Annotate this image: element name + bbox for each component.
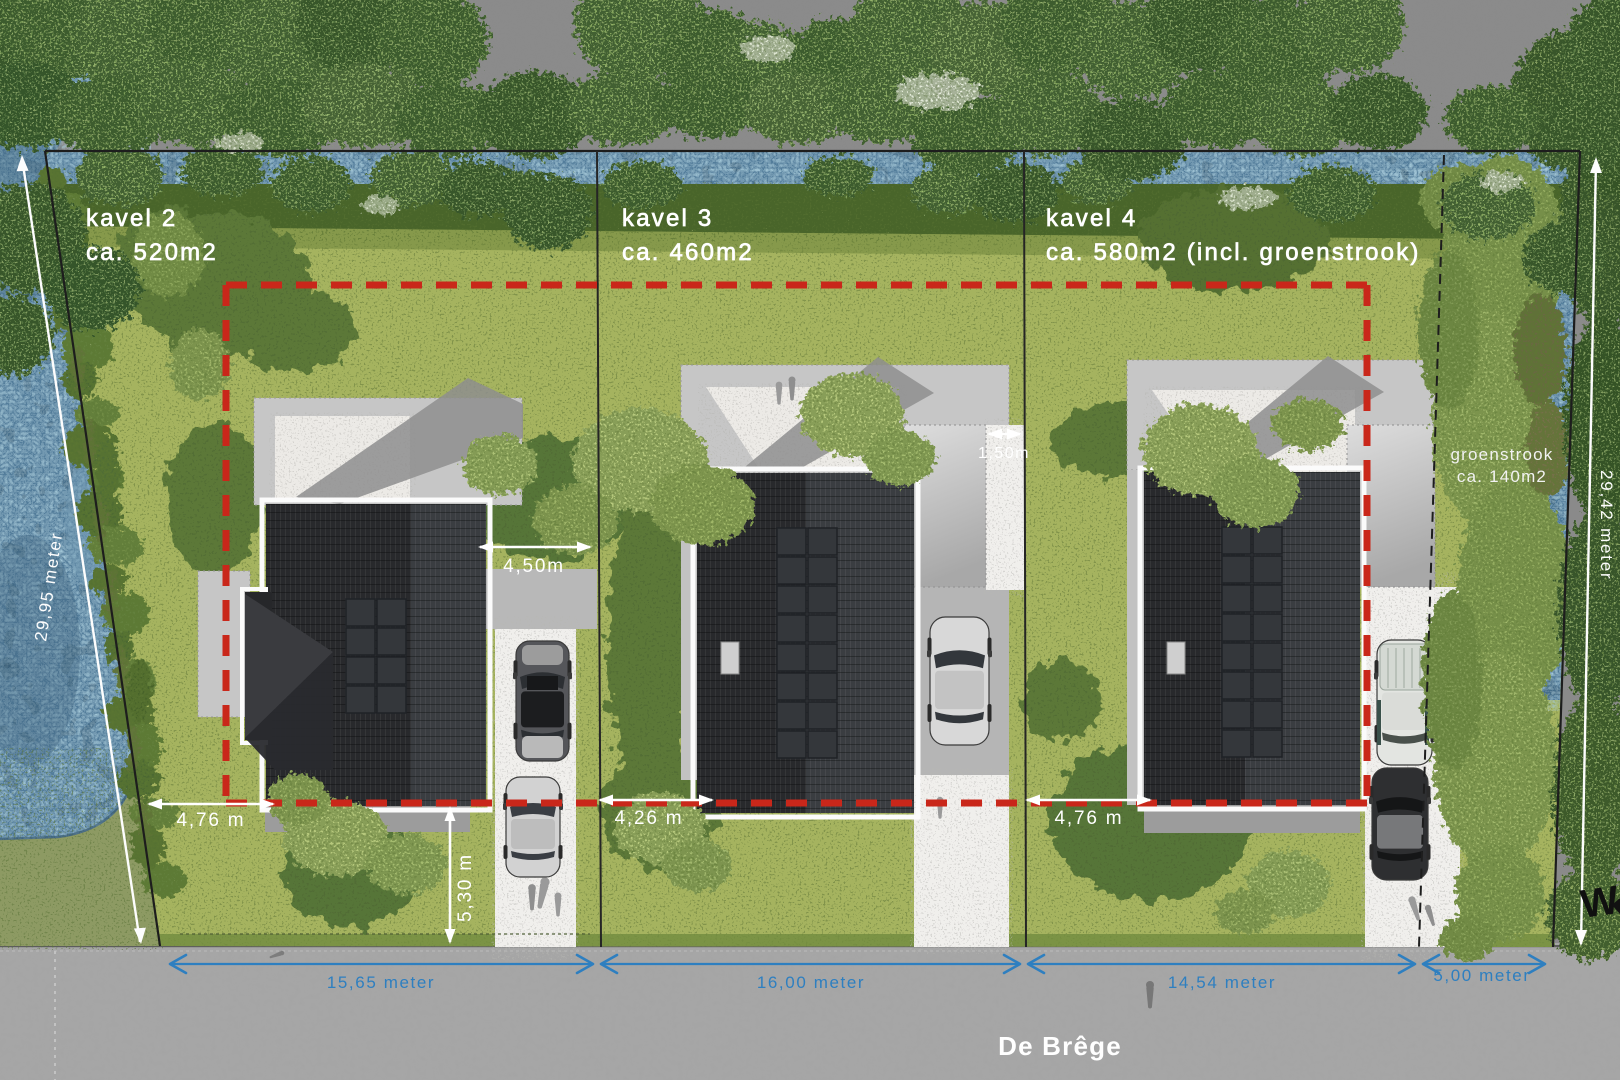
- svg-text:29,42 meter: 29,42 meter: [1597, 470, 1616, 581]
- svg-text:kavel 4: kavel 4: [1046, 205, 1137, 232]
- svg-text:4,26 m: 4,26 m: [615, 808, 684, 829]
- svg-text:14,54 meter: 14,54 meter: [1168, 973, 1276, 992]
- svg-text:De Brêge: De Brêge: [998, 1031, 1122, 1061]
- svg-text:groenstrook: groenstrook: [1451, 445, 1554, 464]
- svg-text:4,76 m: 4,76 m: [177, 810, 246, 831]
- svg-text:ca. 520m2: ca. 520m2: [86, 239, 218, 266]
- svg-text:kavel 3: kavel 3: [622, 205, 713, 232]
- svg-text:4,76 m: 4,76 m: [1055, 808, 1124, 829]
- svg-text:15,65 meter: 15,65 meter: [327, 973, 435, 992]
- svg-text:4,50m: 4,50m: [503, 556, 565, 577]
- svg-text:ca. 460m2: ca. 460m2: [622, 239, 754, 266]
- svg-text:ca. 140m2: ca. 140m2: [1457, 467, 1547, 486]
- svg-text:W: W: [1578, 878, 1620, 927]
- svg-text:16,00 meter: 16,00 meter: [757, 973, 865, 992]
- svg-text:ca. 580m2 (incl. groenstrook): ca. 580m2 (incl. groenstrook): [1046, 239, 1421, 266]
- svg-text:5,30 m: 5,30 m: [455, 853, 476, 922]
- svg-text:kavel 2: kavel 2: [86, 205, 177, 232]
- svg-text:5,00 meter: 5,00 meter: [1433, 966, 1530, 985]
- svg-text:1,50m: 1,50m: [978, 445, 1030, 462]
